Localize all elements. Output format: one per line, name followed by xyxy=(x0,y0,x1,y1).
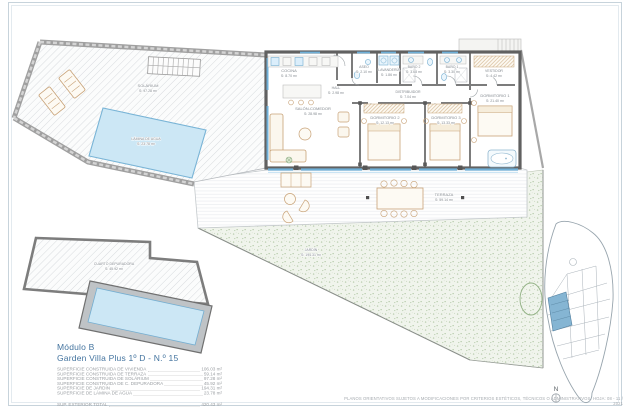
area-total-value: 420.43 m² xyxy=(201,402,222,407)
site-location-map xyxy=(545,221,613,402)
room-area: S: 23.78 m² xyxy=(137,142,156,146)
outdoor-chair-icon xyxy=(285,194,296,205)
room-area: S: 2.98 m² xyxy=(328,91,345,95)
room-area: S: 13.33 m² xyxy=(437,121,456,125)
room-label: DISTRIBUIDOR xyxy=(395,90,421,94)
area-row: SUPERFICIE DE LÁMINA DE AGUA23.78 m² xyxy=(57,391,222,396)
room-area: S: 28.98 m² xyxy=(304,112,323,116)
north-label: N xyxy=(554,386,559,393)
room-area: S: 8.70 m² xyxy=(281,74,298,78)
plan-sheet: COCINA S: 8.70 m² HALL S: 2.98 m² ASEO S… xyxy=(0,0,630,409)
area-label: SUPERFICIE DE LÁMINA DE AGUA xyxy=(57,391,132,396)
room-label: LÁMINA DE AGUA xyxy=(131,137,161,141)
leader-dots xyxy=(148,367,200,371)
stairs-icon xyxy=(148,57,201,77)
room-label: BAÑO 2 xyxy=(408,64,421,69)
leader-dots xyxy=(109,403,200,407)
title-block: Módulo B Garden Villa Plus 1º D - N.º 15 xyxy=(57,342,178,364)
room-label: ASEO xyxy=(359,65,369,69)
room-label: VESTIDOR xyxy=(485,69,503,73)
room-label: HALL xyxy=(332,86,341,90)
unit-title: Garden Villa Plus 1º D - N.º 15 xyxy=(57,353,178,364)
room-label: SALÓN-COMEDOR xyxy=(295,106,331,111)
leader-dots xyxy=(134,391,203,395)
area-total-row: SUP. EXTERIOR TOTAL420.43 m² xyxy=(57,402,222,407)
module-title: Módulo B xyxy=(57,342,178,353)
area-value: 23.78 m² xyxy=(204,391,222,396)
room-area: S: 4.42 m² xyxy=(486,74,503,78)
room-area: S: 12.13 m² xyxy=(376,121,395,125)
room-label: LAVANDERÍA xyxy=(378,68,400,72)
room-label: CUARTO DEPURADORA xyxy=(94,262,135,266)
bathtub-icon xyxy=(488,150,516,167)
pergola-column xyxy=(461,196,464,199)
room-label: BAÑO 1 xyxy=(446,64,459,69)
room-area: S: 3.68 m² xyxy=(406,70,423,74)
room-area: S: 194.31 m² xyxy=(301,253,322,257)
room-label: DORMITORIO 2 xyxy=(370,115,400,120)
room-area: S: 2.10 m² xyxy=(356,70,373,74)
area-total-label: SUP. EXTERIOR TOTAL xyxy=(57,402,107,407)
room-area: S: 45.92 m² xyxy=(105,267,124,271)
room-label: TERRAZA xyxy=(435,192,454,197)
pergola-column xyxy=(366,196,369,199)
terrace-area xyxy=(194,168,527,228)
room-area: S: 1.86 m² xyxy=(381,73,398,77)
room-area: S: 59.14 m² xyxy=(435,198,454,202)
entry-path xyxy=(459,39,521,51)
room-area: S: 7.04 m² xyxy=(400,95,417,99)
room-label: COCINA xyxy=(281,68,297,73)
room-label: SOLÁRIUM xyxy=(138,83,159,88)
areas-table: SUPERFICIE CONSTRUIDA DE VIVIENDA106.03 … xyxy=(57,367,222,407)
outdoor-table-icon xyxy=(281,173,311,187)
disclaimer-note: PLANOS ORIENTATIVOS SUJETOS A MODIFICACI… xyxy=(338,396,623,406)
plant-icon xyxy=(286,157,292,163)
room-label: JARDÍN xyxy=(305,248,318,252)
room-label: DORMITORIO 3 xyxy=(431,115,461,120)
leader-dots xyxy=(165,382,203,386)
pump-room-structure xyxy=(24,238,212,353)
room-area: S: 3.30 m² xyxy=(444,70,461,74)
leader-dots xyxy=(148,372,203,376)
solarium-area xyxy=(14,42,266,182)
room-label: DORMITORIO 1 xyxy=(480,93,510,98)
room-area: S: 21.40 m² xyxy=(486,99,505,103)
room-area: S: 97.28 m² xyxy=(139,89,158,93)
